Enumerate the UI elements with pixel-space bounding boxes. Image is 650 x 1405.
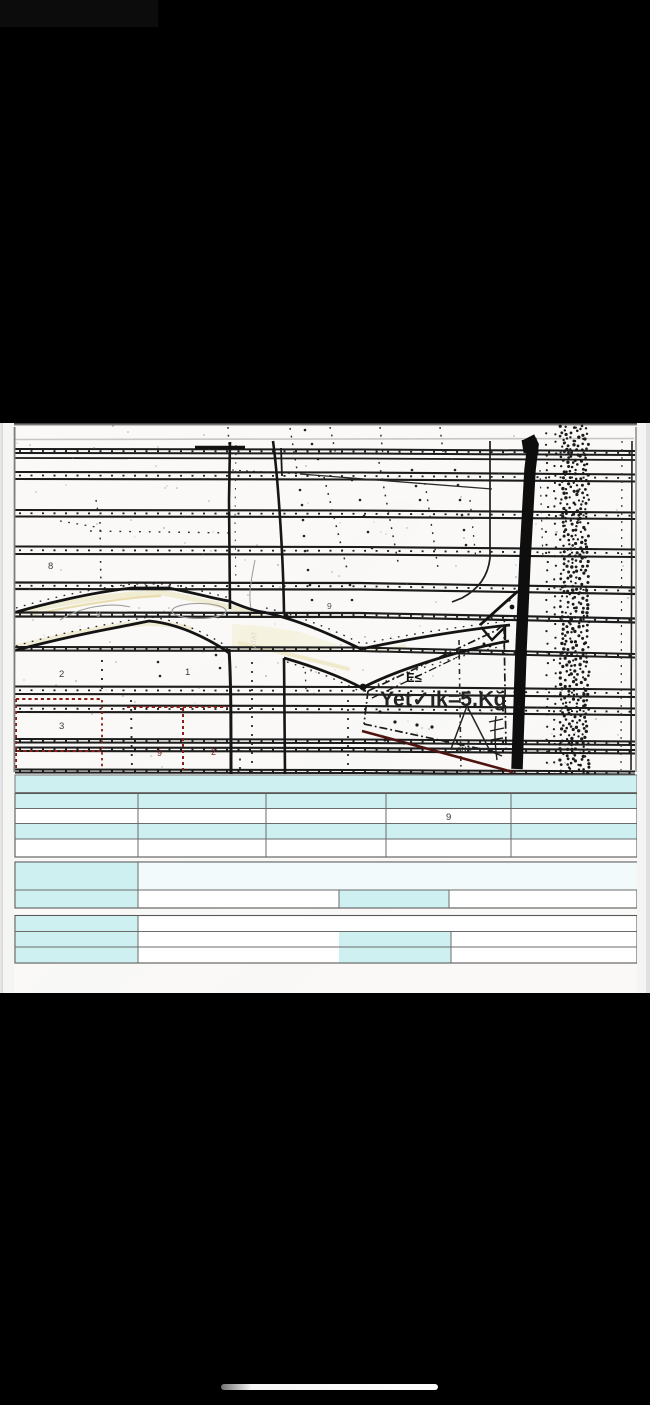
svg-text:9: 9	[327, 601, 332, 611]
svg-text:Yet✓ık=5.Kğ: Yet✓ık=5.Kğ	[380, 688, 507, 711]
svg-text:ANA: ANA	[457, 746, 472, 754]
svg-text:1: 1	[185, 667, 190, 678]
svg-text:3: 3	[59, 721, 64, 732]
svg-text:2: 2	[211, 747, 216, 757]
svg-text:8: 8	[48, 561, 53, 572]
svg-text:9: 9	[96, 609, 101, 619]
svg-text:E≤: E≤	[406, 670, 422, 685]
svg-text:2: 2	[59, 669, 64, 680]
svg-text:9: 9	[157, 748, 162, 758]
svg-text:ATAT: ATAT	[251, 631, 259, 648]
svg-text:9: 9	[446, 812, 451, 823]
